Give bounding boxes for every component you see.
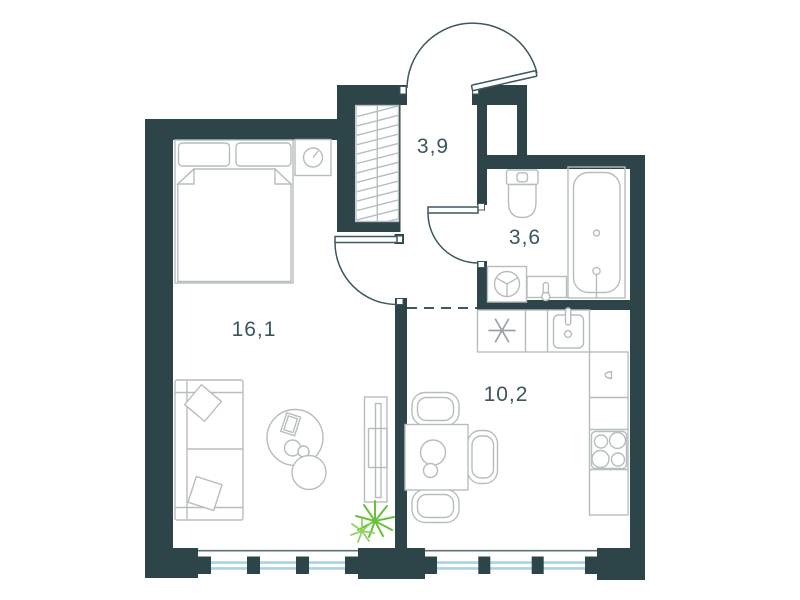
entrance-door <box>407 23 537 91</box>
floor-plan-page: 16,1 3,9 3,6 10,2 <box>0 0 800 600</box>
bathtub <box>568 167 625 298</box>
dining-chair-right <box>468 431 498 484</box>
bed-blanket <box>178 169 291 282</box>
floor-plan: 16,1 3,9 3,6 10,2 <box>0 0 800 600</box>
wall-wardrobe-bottom <box>355 222 400 232</box>
living-room-area-label: 16,1 <box>232 318 277 341</box>
bathroom-area-label: 3,6 <box>509 226 541 249</box>
sofa <box>175 380 243 520</box>
wall-shaft-left <box>477 100 487 158</box>
bathroom-sink <box>527 277 567 301</box>
dining-set <box>405 393 498 523</box>
pouf <box>292 456 326 490</box>
pier-bottom-right <box>597 548 645 580</box>
pier-bottom-left <box>145 548 198 578</box>
dining-chair-top <box>412 393 459 426</box>
living-room-door <box>335 237 397 305</box>
kitchen-area-label: 10,2 <box>484 383 529 406</box>
wall-shaft-right <box>517 100 527 158</box>
door-jambs <box>396 87 485 305</box>
bed <box>175 140 293 283</box>
bath-door-swing-arc <box>428 213 478 263</box>
living-door-swing-arc <box>335 243 397 305</box>
wall-top-hallway-left <box>337 85 407 105</box>
plant-icon <box>351 501 394 542</box>
washing-machine <box>488 267 527 303</box>
hallway-area-label: 3,9 <box>417 135 449 158</box>
plate-icon <box>421 440 446 465</box>
ventilation-shaft <box>487 105 517 155</box>
tv-screen <box>376 404 382 498</box>
kitchen-counter-top <box>478 308 590 352</box>
kitchen-faucet <box>566 308 571 325</box>
bed-pillow-left <box>179 143 230 166</box>
bath-door-jamb-top <box>478 204 485 211</box>
wall-top-living <box>145 119 350 140</box>
wall-right <box>630 155 645 580</box>
wardrobe <box>356 106 399 230</box>
bathtub-drain <box>594 230 600 236</box>
bathtub-faucet <box>593 267 600 274</box>
bath-door-jamb-bottom <box>478 262 485 268</box>
window-left-glazing <box>198 563 358 569</box>
wall-bathroom-left-upper <box>477 169 487 205</box>
living-door-jamb-bottom <box>397 299 404 305</box>
tv-unit <box>365 397 388 502</box>
pier-bottom-center <box>358 548 425 579</box>
dining-chair-bottom <box>412 490 459 523</box>
toilet <box>507 170 539 218</box>
wall-wardrobe-left <box>337 85 355 232</box>
kitchen-counter-right <box>590 352 629 515</box>
bathroom-door <box>428 207 478 263</box>
bath-door-leaf <box>428 207 478 213</box>
cup-icon-2 <box>424 464 438 478</box>
wall-partition-living-kitchen <box>395 298 407 548</box>
nightstand <box>295 140 331 176</box>
bed-pillow-right <box>236 143 291 166</box>
toilet-bowl <box>509 185 537 218</box>
window-right-glazing <box>425 563 597 569</box>
living-door-leaf <box>335 237 397 243</box>
wall-left <box>145 119 173 548</box>
entry-jamb-left <box>400 87 406 95</box>
